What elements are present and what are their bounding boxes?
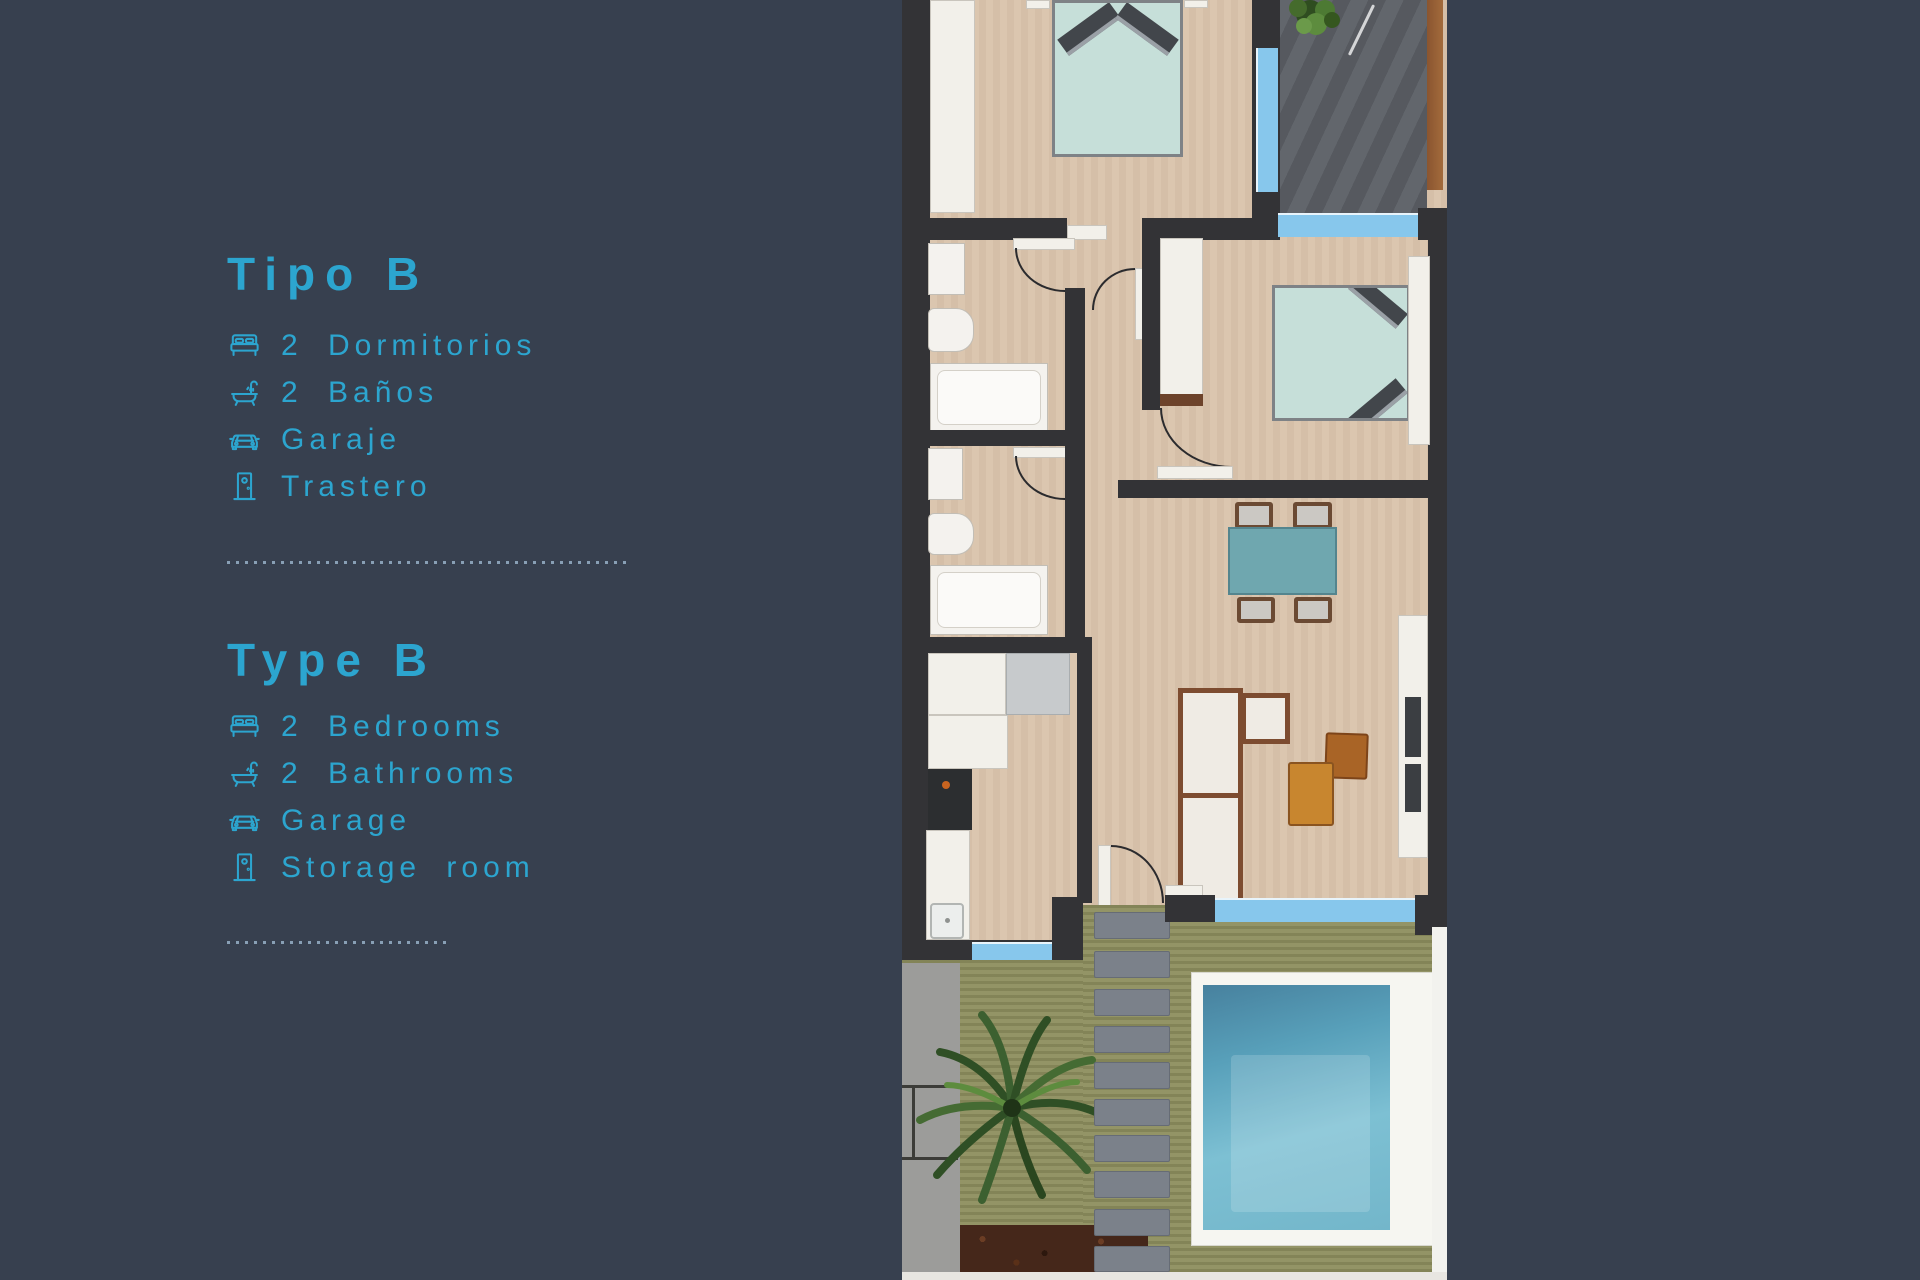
pillow — [1057, 2, 1121, 56]
title-spanish: Tipo B — [227, 247, 429, 301]
feature-row: 2 Dormitorios — [227, 322, 536, 369]
bedroom2-bed — [1272, 285, 1410, 421]
bathroom1-bathtub — [930, 363, 1048, 432]
pillow — [1348, 378, 1408, 421]
stepping-stone — [1094, 1062, 1170, 1089]
stepping-stone — [1094, 1171, 1170, 1198]
feature-label: Garage — [281, 804, 411, 838]
dining-chair — [1235, 502, 1273, 529]
coffee-table — [1288, 762, 1334, 826]
sofa-chaise — [1178, 688, 1243, 905]
stove-burner — [942, 781, 950, 789]
bedroom2-headboard — [1408, 256, 1430, 445]
garden-right-border — [1432, 927, 1447, 1280]
feature-label: Trastero — [281, 470, 432, 504]
wall — [1428, 237, 1447, 913]
bedroom2-wardrobe — [1160, 238, 1203, 398]
tv-screen — [1405, 764, 1421, 812]
feature-label: 2 Bedrooms — [281, 710, 505, 744]
feature-label: 2 Dormitorios — [281, 329, 536, 363]
wall — [1165, 895, 1215, 922]
bathtub-basin — [937, 370, 1041, 425]
bathtub-basin — [937, 572, 1041, 628]
stepping-stone — [1094, 1099, 1170, 1126]
kitchen-sink — [930, 903, 964, 939]
door-icon — [227, 850, 262, 885]
door-icon — [227, 469, 262, 504]
feature-row: 2 Bathrooms — [227, 750, 535, 797]
nightstand — [1026, 0, 1050, 9]
bath-icon — [227, 375, 262, 410]
feature-row: 2 Bedrooms — [227, 703, 535, 750]
pool-water-highlight — [1231, 1055, 1370, 1212]
palm-tree — [912, 990, 1122, 1225]
wall — [1077, 650, 1092, 903]
door-leaf — [1157, 466, 1233, 479]
divider-dotted — [227, 941, 449, 944]
terrace-wood-screen — [1427, 0, 1443, 190]
wall — [907, 637, 1092, 653]
feature-list-spanish: 2 Dormitorios 2 Baños Garaje Trastero — [227, 322, 536, 510]
terrace-plant — [1280, 0, 1352, 50]
feature-label: Garaje — [281, 423, 401, 457]
wall — [902, 0, 930, 963]
feature-label: 2 Bathrooms — [281, 757, 518, 791]
bed-icon — [227, 328, 262, 363]
floor-plan — [902, 0, 1447, 1280]
wall — [1052, 897, 1083, 960]
car-icon — [227, 803, 262, 838]
garden-bottom-border — [902, 1272, 1447, 1280]
kitchen-counter — [928, 715, 1008, 769]
stepping-stone — [1094, 989, 1170, 1016]
window — [1256, 48, 1278, 192]
feature-list-english: 2 Bedrooms 2 Bathrooms Garage Storage ro… — [227, 703, 535, 891]
window — [1278, 213, 1418, 237]
sofa-corner-seat — [1241, 693, 1290, 744]
wall — [907, 430, 1085, 446]
wall — [1142, 222, 1160, 410]
stepping-stone — [1094, 912, 1170, 939]
stepping-stone — [1094, 1026, 1170, 1053]
feature-row: Trastero — [227, 463, 536, 510]
bath-icon — [227, 756, 262, 791]
title-english: Type B — [227, 633, 437, 687]
bedroom1-wardrobe — [930, 0, 975, 213]
kitchen-counter — [928, 653, 1006, 715]
kitchen-stove — [928, 769, 972, 830]
bed-icon — [227, 709, 262, 744]
tv-screen — [1405, 697, 1421, 757]
feature-row: Storage room — [227, 844, 535, 891]
divider-dotted — [227, 561, 627, 564]
stepping-stone — [1094, 1246, 1170, 1272]
dining-chair — [1293, 502, 1332, 529]
wall — [1118, 480, 1447, 498]
bathroom1-toilet — [928, 308, 974, 352]
feature-label: 2 Baños — [281, 376, 438, 410]
stepping-stone — [1094, 951, 1170, 978]
dining-table — [1228, 527, 1337, 595]
feature-row: 2 Baños — [227, 369, 536, 416]
stepping-stone — [1094, 1209, 1170, 1236]
car-icon — [227, 422, 262, 457]
bedroom1-bed — [1052, 0, 1183, 157]
dining-chair — [1294, 597, 1332, 623]
nightstand — [1184, 0, 1208, 8]
dining-chair — [1237, 597, 1275, 623]
sliding-window — [1215, 898, 1415, 922]
stepping-stone — [1094, 1135, 1170, 1162]
door-leaf — [1098, 845, 1111, 907]
sofa-cushion-divider — [1183, 793, 1238, 798]
wall — [1142, 218, 1280, 240]
bathroom2-sink — [928, 448, 963, 500]
brochure-page: Tipo B 2 Dormitorios 2 Baños Garaje Tras… — [0, 0, 1920, 1280]
feature-label: Storage room — [281, 851, 535, 885]
bathroom2-bathtub — [930, 565, 1048, 635]
feature-row: Garaje — [227, 416, 536, 463]
pillow — [1348, 285, 1408, 329]
wall — [1418, 208, 1447, 240]
pool-water — [1203, 985, 1390, 1230]
wall — [1065, 288, 1085, 650]
wardrobe-base — [1160, 394, 1203, 406]
feature-row: Garage — [227, 797, 535, 844]
sink-drain — [945, 918, 950, 923]
wall — [907, 218, 1067, 240]
bathroom1-sink — [928, 243, 965, 295]
kitchen-fridge — [1006, 653, 1070, 715]
pillow — [1115, 2, 1179, 56]
bathroom2-toilet — [928, 513, 974, 555]
